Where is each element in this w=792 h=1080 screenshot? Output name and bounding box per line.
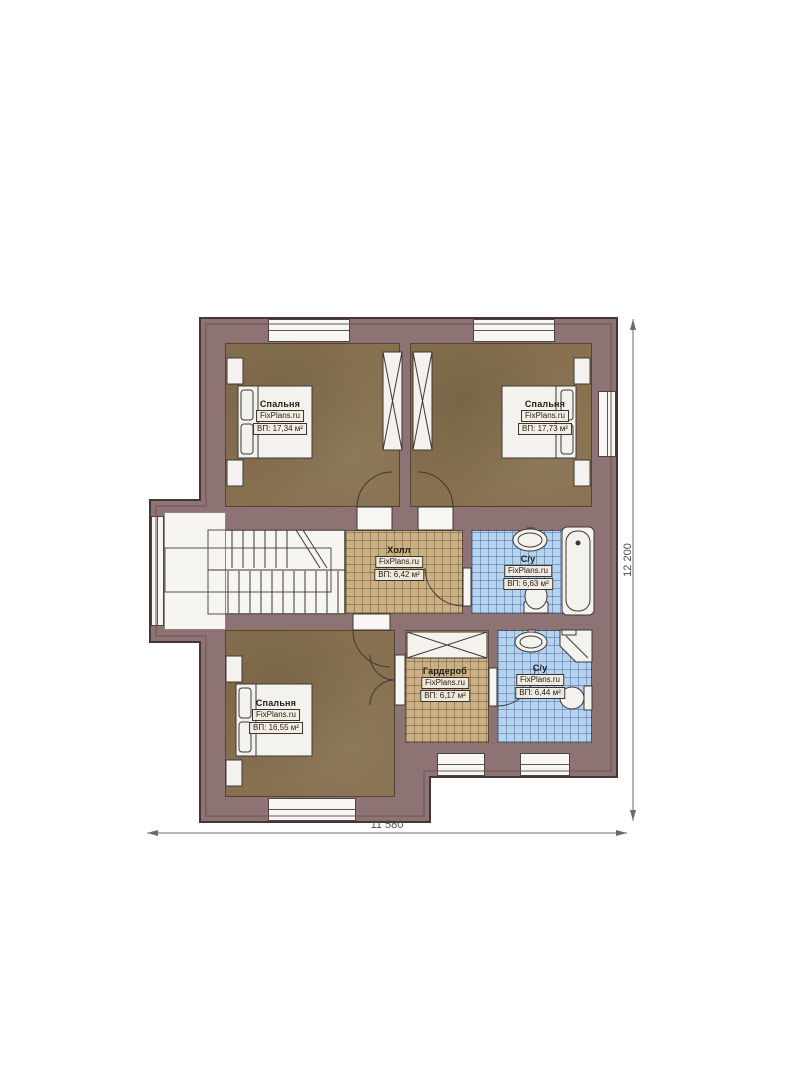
brand-watermark: FixPlans.ru — [516, 674, 564, 686]
window-right-bedroom — [598, 391, 616, 457]
floor-plan-page: Спальня FixPlans.ru ВП: 17,34 м² Спальня… — [0, 0, 792, 1080]
dimension-width-label: 11 580 — [371, 819, 404, 831]
brand-watermark: FixPlans.ru — [521, 410, 569, 422]
window-bottom-wardrobe — [437, 753, 485, 776]
room-label-bedroom-bottom: Спальня FixPlans.ru ВП: 16,55 м² — [249, 698, 303, 734]
room-name: Спальня — [256, 698, 296, 708]
room-area: ВП: 17,73 м² — [518, 423, 572, 435]
room-label-bedroom-top-left: Спальня FixPlans.ru ВП: 17,34 м² — [253, 399, 307, 435]
dimension-height-label: 12 200 — [622, 543, 634, 577]
room-label-wardrobe: Гардероб FixPlans.ru ВП: 6,17 м² — [420, 666, 470, 702]
room-name: Холл — [387, 545, 410, 555]
staircase-floor — [225, 530, 345, 614]
window-bottom-bedroom — [268, 798, 356, 821]
brand-watermark: FixPlans.ru — [256, 410, 304, 422]
room-area: ВП: 6,17 м² — [420, 690, 470, 702]
room-floor-bedroom-top-left — [225, 343, 400, 507]
room-area: ВП: 16,55 м² — [249, 722, 303, 734]
room-area: ВП: 6,63 м² — [503, 578, 553, 590]
room-label-bathroom-bottom: С/у FixPlans.ru ВП: 6,44 м² — [515, 663, 565, 699]
room-label-bathroom-top: С/у FixPlans.ru ВП: 6,63 м² — [503, 554, 553, 590]
window-bottom-bathroom — [520, 753, 570, 776]
stair-landing-floor — [164, 512, 226, 630]
brand-watermark: FixPlans.ru — [504, 565, 552, 577]
room-area: ВП: 17,34 м² — [253, 423, 307, 435]
room-name: С/у — [521, 554, 536, 564]
room-area: ВП: 6,44 м² — [515, 687, 565, 699]
window-top-left — [268, 319, 350, 342]
room-label-bedroom-top-right: Спальня FixPlans.ru ВП: 17,73 м² — [518, 399, 572, 435]
brand-watermark: FixPlans.ru — [421, 677, 469, 689]
room-area: ВП: 6,42 м² — [374, 569, 424, 581]
room-name: С/у — [533, 663, 548, 673]
room-name: Спальня — [525, 399, 565, 409]
brand-watermark: FixPlans.ru — [252, 709, 300, 721]
room-name: Гардероб — [423, 666, 467, 676]
window-stair-bay — [151, 516, 164, 626]
brand-watermark: FixPlans.ru — [375, 556, 423, 568]
room-name: Спальня — [260, 399, 300, 409]
room-label-hall: Холл FixPlans.ru ВП: 6,42 м² — [374, 545, 424, 581]
window-top-right — [473, 319, 555, 342]
